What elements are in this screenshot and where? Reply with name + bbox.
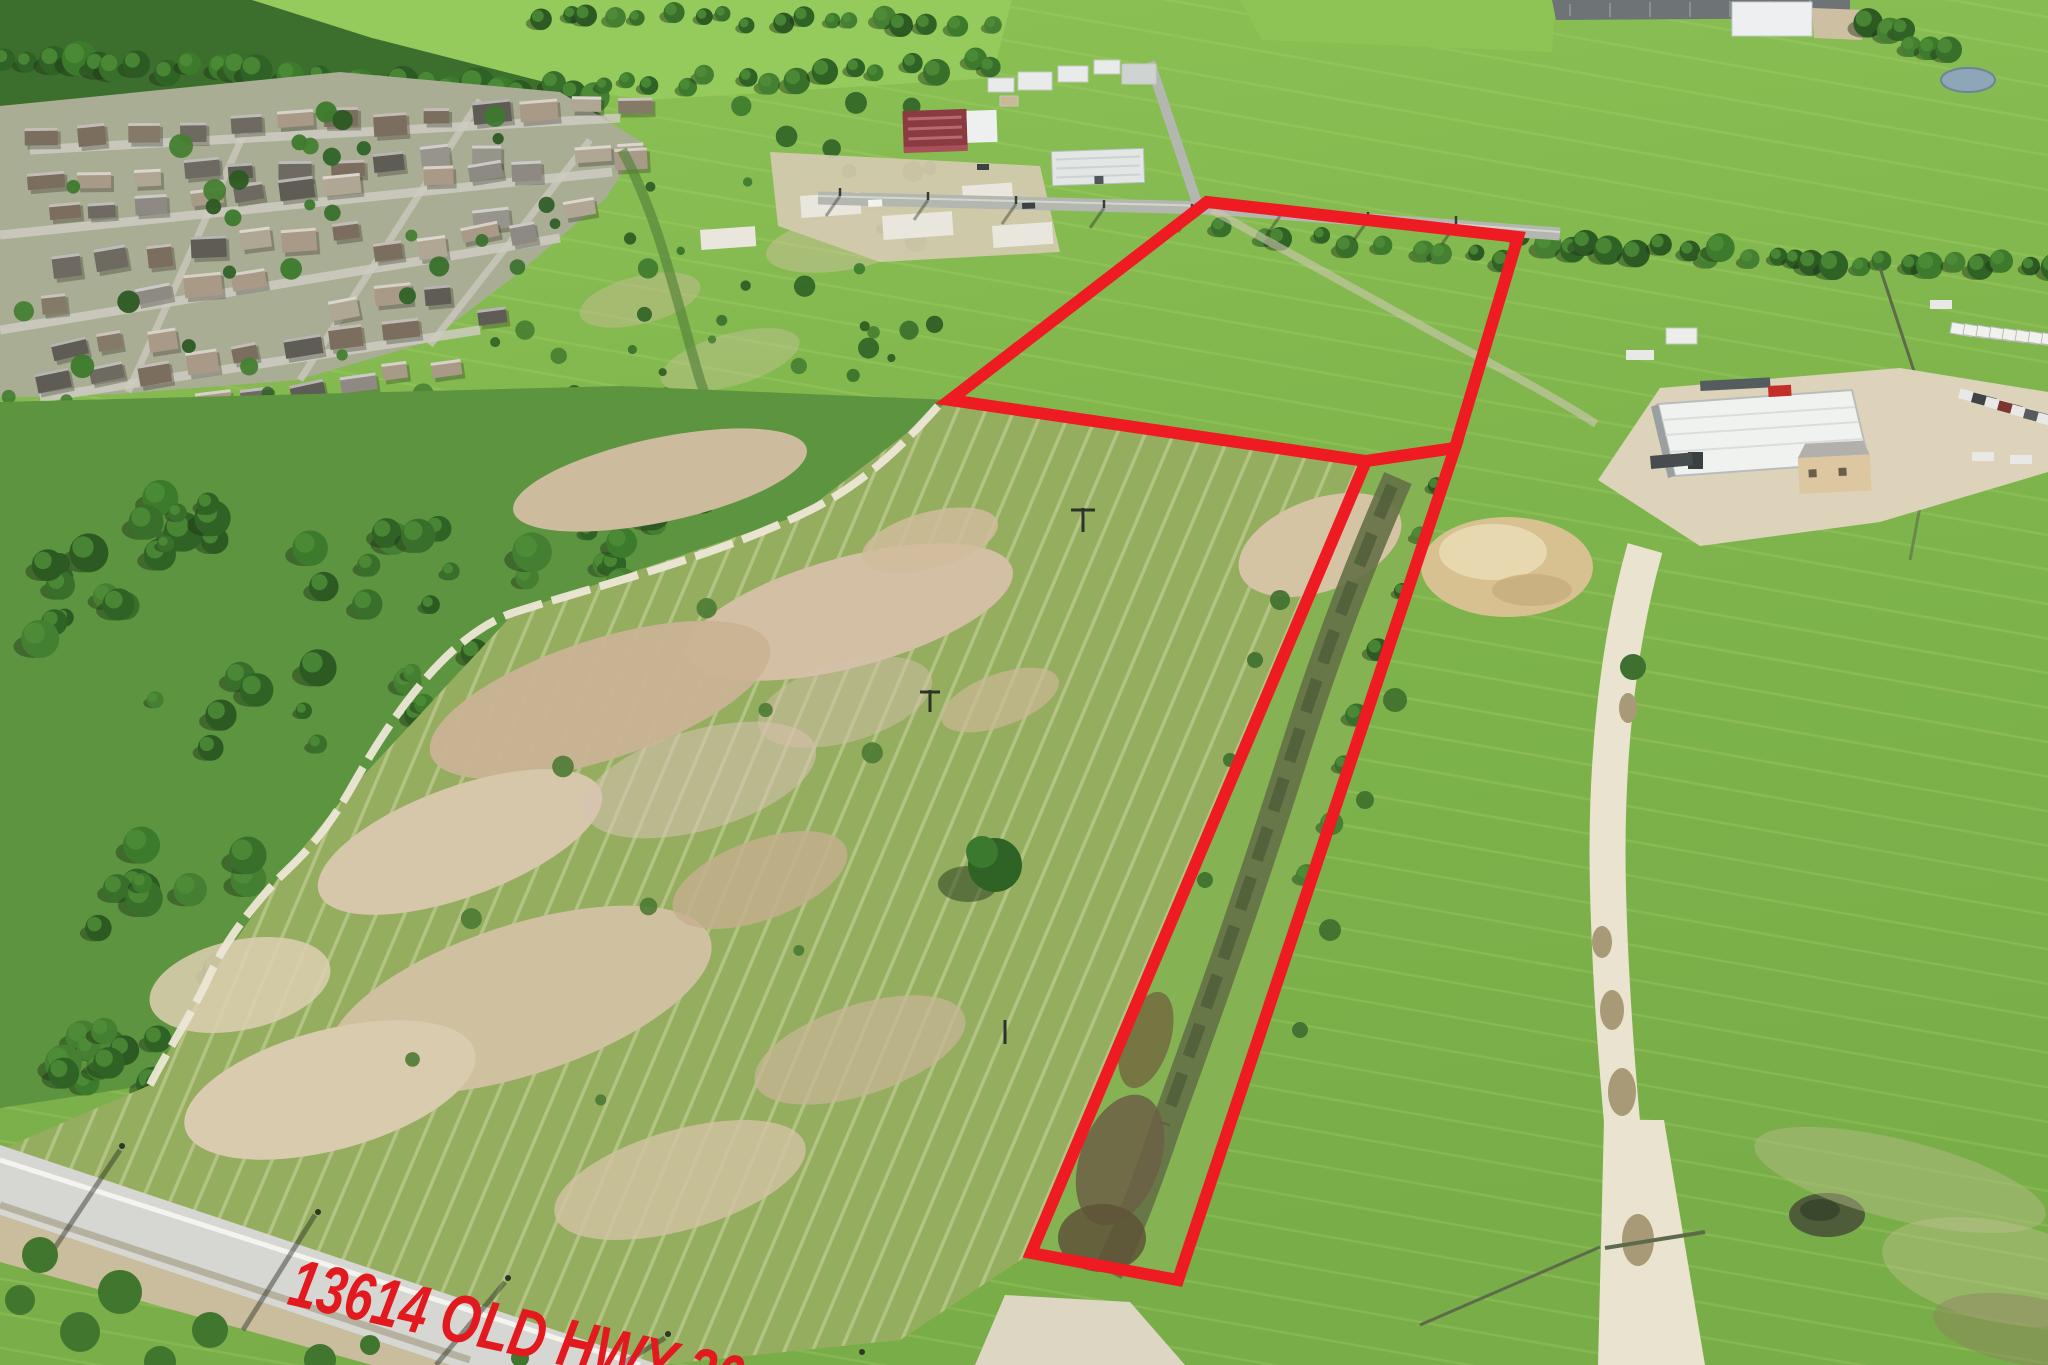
white-warehouse-top (1051, 148, 1144, 185)
aerial-photo: 13614 OLD HWY 20 (0, 0, 2048, 1365)
small-trailer (1626, 350, 1654, 360)
debris-pile-core (1800, 1199, 1840, 1221)
dirt-mound (1421, 517, 1593, 617)
aerial-photo-canvas: 13614 OLD HWY 20 (0, 0, 2048, 1365)
red-truck (1768, 385, 1792, 397)
tan-house (1797, 440, 1872, 494)
pond (1941, 68, 1995, 92)
white-shed (1666, 328, 1697, 344)
bush-by-dirt-road (1620, 654, 1646, 680)
